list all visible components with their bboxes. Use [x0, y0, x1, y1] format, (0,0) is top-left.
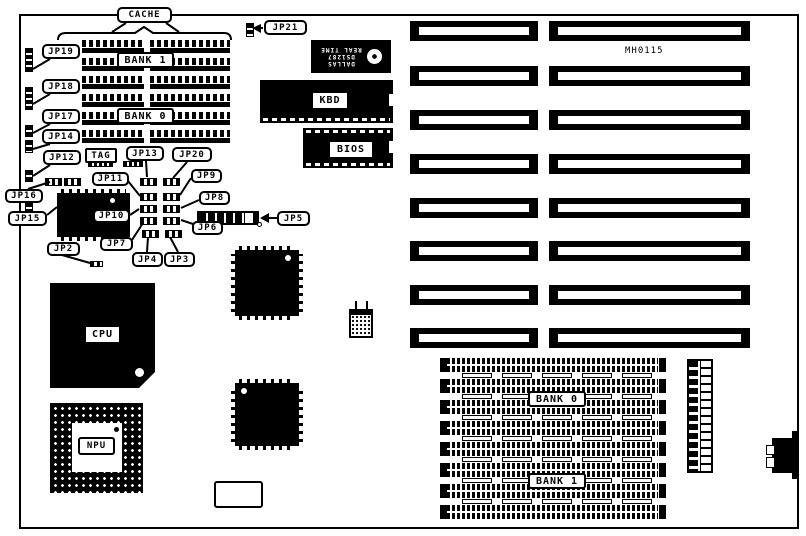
- jp18-callout: JP18: [42, 79, 80, 94]
- jp5-callout: JP5: [277, 211, 310, 226]
- jp9-callout: JP9: [191, 169, 222, 183]
- jp13-callout: JP13: [126, 146, 164, 161]
- cache-brace: [58, 27, 231, 40]
- jp20-callout: JP20: [172, 147, 212, 162]
- cache-callout: CACHE: [117, 7, 172, 23]
- jp19-callout: JP19: [42, 44, 80, 59]
- jp4-callout: JP4: [132, 252, 163, 267]
- jp10-callout: JP10: [93, 209, 130, 223]
- jp5-arrowhead: [260, 213, 269, 223]
- jp7-callout: JP7: [100, 237, 133, 251]
- jp17-callout: JP17: [42, 109, 80, 124]
- jp16-callout: JP16: [5, 189, 43, 203]
- jp11-callout: JP11: [92, 172, 129, 186]
- jp8-callout: JP8: [199, 191, 230, 205]
- jp14-callout: JP14: [42, 129, 80, 144]
- jp6-callout: JP6: [192, 221, 223, 235]
- motherboard-diagram: DALLAS DS1287 REAL TIME KBD BIOS CPU NPU: [0, 0, 806, 536]
- jp21-callout: JP21: [264, 20, 307, 35]
- jp21-arrowhead: [252, 24, 261, 33]
- jp2-callout: JP2: [47, 242, 80, 256]
- callout-lines: [0, 0, 806, 536]
- jp3-callout: JP3: [164, 252, 195, 267]
- jp12-callout: JP12: [43, 150, 81, 165]
- tag-callout: TAG: [85, 148, 117, 163]
- jp15-callout: JP15: [8, 211, 47, 226]
